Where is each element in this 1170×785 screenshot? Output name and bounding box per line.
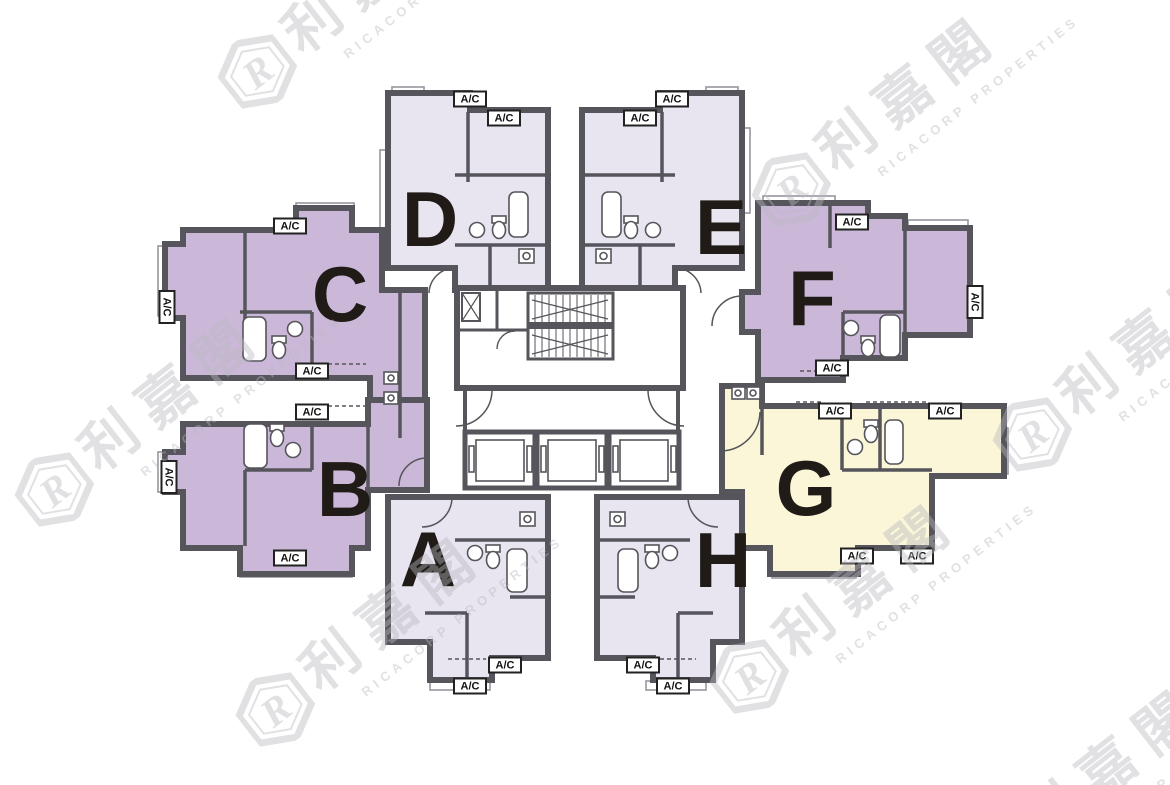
ac-unit-label: A/C bbox=[453, 678, 487, 695]
unit-label-B: B bbox=[317, 450, 373, 528]
ac-unit-label: A/C bbox=[295, 363, 329, 380]
ac-unit-label: A/C bbox=[453, 91, 487, 108]
ac-unit-label: A/C bbox=[967, 285, 984, 319]
ac-unit-label: A/C bbox=[161, 460, 178, 494]
ac-unit-label: A/C bbox=[818, 403, 852, 420]
ac-unit-label: A/C bbox=[159, 290, 176, 324]
ac-unit-label: A/C bbox=[656, 678, 690, 695]
ac-unit-label: A/C bbox=[488, 657, 522, 674]
floor-plan-canvas: ABCDEFGHA/CA/CA/CA/CA/CA/CA/CA/CA/CA/CA/… bbox=[0, 0, 1170, 785]
unit-label-H: H bbox=[695, 521, 751, 599]
ac-unit-label: A/C bbox=[815, 360, 849, 377]
unit-label-E: E bbox=[695, 188, 747, 266]
ac-unit-label: A/C bbox=[655, 91, 689, 108]
ac-unit-label: A/C bbox=[928, 403, 962, 420]
ac-unit-label: A/C bbox=[900, 548, 934, 565]
unit-label-C: C bbox=[312, 255, 368, 333]
unit-label-G: G bbox=[776, 449, 837, 527]
ac-unit-label: A/C bbox=[840, 548, 874, 565]
ac-unit-label: A/C bbox=[273, 218, 307, 235]
ac-unit-label: A/C bbox=[273, 550, 307, 567]
ac-unit-label: A/C bbox=[487, 110, 521, 127]
ac-unit-label: A/C bbox=[623, 110, 657, 127]
unit-label-D: D bbox=[402, 180, 458, 258]
ac-unit-label: A/C bbox=[626, 657, 660, 674]
ac-unit-label: A/C bbox=[835, 214, 869, 231]
unit-label-A: A bbox=[400, 520, 456, 598]
unit-label-F: F bbox=[788, 259, 836, 337]
ac-unit-label: A/C bbox=[295, 404, 329, 421]
labels-overlay: ABCDEFGHA/CA/CA/CA/CA/CA/CA/CA/CA/CA/CA/… bbox=[0, 0, 1170, 785]
